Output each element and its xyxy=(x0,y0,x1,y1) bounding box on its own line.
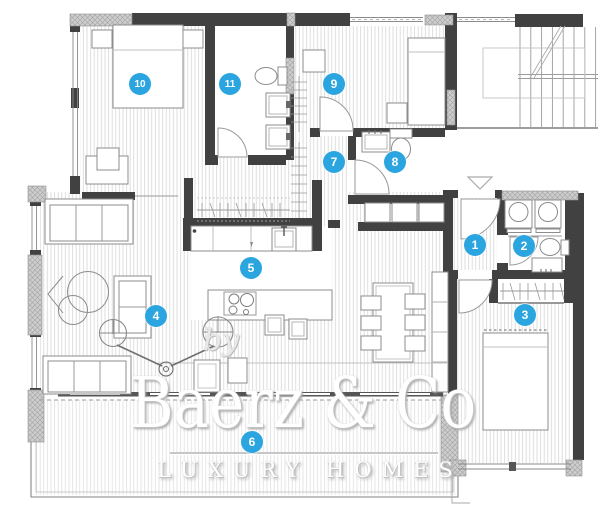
room-marker-4: 4 xyxy=(145,305,167,327)
room-marker-3: 3 xyxy=(514,304,536,326)
room-marker-8: 8 xyxy=(384,151,406,173)
hall-cabinets xyxy=(365,203,444,222)
room-marker-1: 1 xyxy=(464,234,486,256)
bathroom-11 xyxy=(255,67,291,149)
watermark-by: by xyxy=(203,323,239,358)
floorplan-stage: by Baerz & Co LUXURY HOMES 1234567891011 xyxy=(0,0,600,520)
room-marker-6: 6 xyxy=(241,431,263,453)
room-marker-5: 5 xyxy=(240,257,262,279)
watermark-tagline: LUXURY HOMES xyxy=(157,458,463,482)
watermark-divider xyxy=(170,452,438,454)
room-marker-9: 9 xyxy=(323,73,345,95)
room-marker-11: 11 xyxy=(219,73,241,95)
staircase xyxy=(457,26,598,128)
room-marker-7: 7 xyxy=(323,151,345,173)
room-marker-2: 2 xyxy=(513,235,535,257)
room-marker-10: 10 xyxy=(129,73,151,95)
entrance-arrow xyxy=(468,177,492,189)
watermark-brand: Baerz & Co xyxy=(130,362,476,444)
